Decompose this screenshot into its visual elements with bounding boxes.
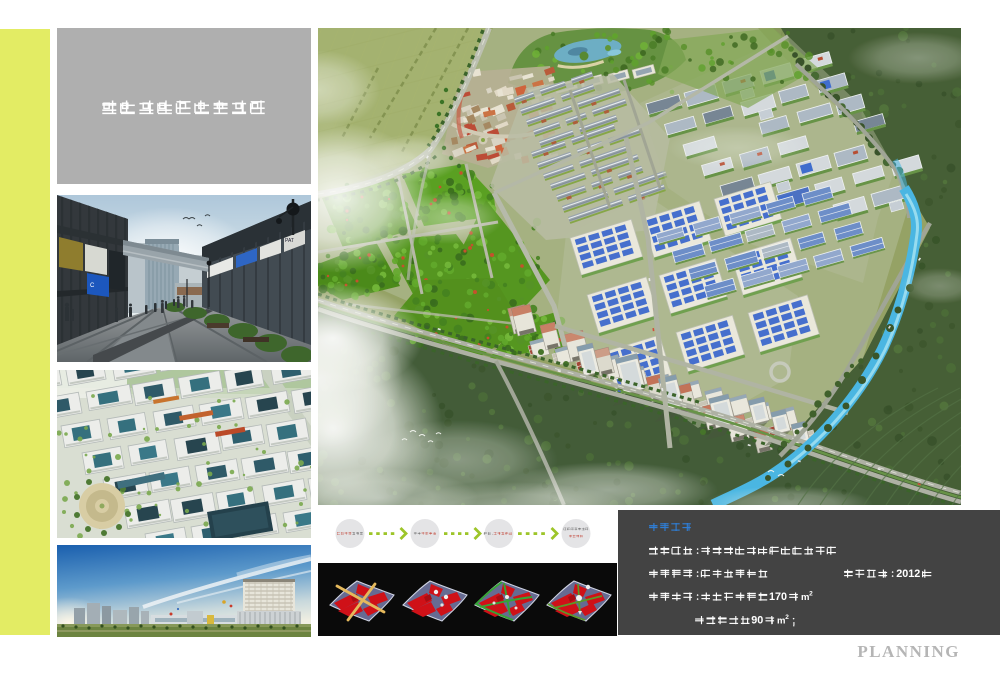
svg-text:C: C <box>90 283 95 289</box>
svg-text:PAT: PAT <box>285 238 294 244</box>
svg-text:2012: 2012 <box>896 568 920 580</box>
svg-text:170: 170 <box>769 591 787 603</box>
svg-text:90: 90 <box>751 614 763 626</box>
svg-text:2: 2 <box>809 591 813 598</box>
svg-text:m: m <box>777 616 785 627</box>
svg-text:2: 2 <box>785 614 789 621</box>
